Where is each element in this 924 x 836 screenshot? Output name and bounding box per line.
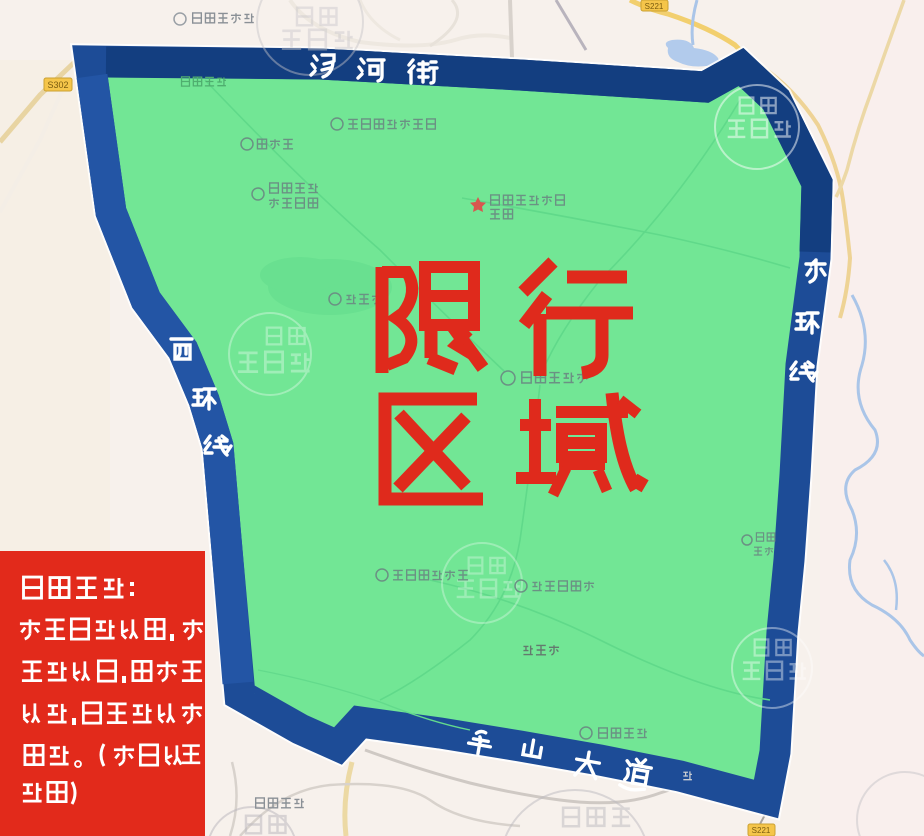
- svg-text:S302: S302: [47, 80, 68, 90]
- svg-text:S221: S221: [752, 826, 771, 835]
- svg-text:S221: S221: [645, 2, 664, 11]
